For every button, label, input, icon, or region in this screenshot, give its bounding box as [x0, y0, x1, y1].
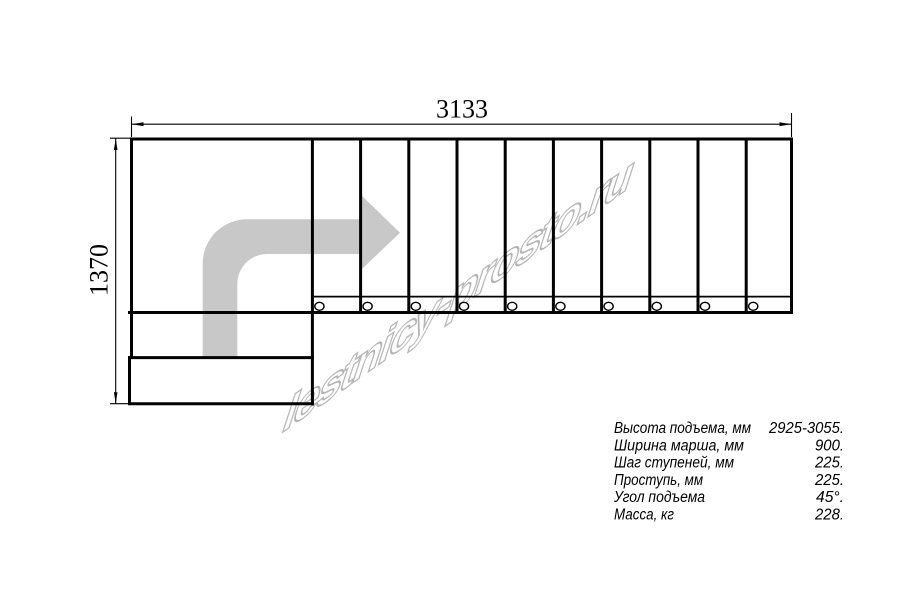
svg-text:900.: 900. [815, 438, 844, 455]
svg-text:3133: 3133 [436, 95, 488, 124]
svg-text:Высота подъема, мм: Высота подъема, мм [614, 420, 751, 437]
svg-text:228.: 228. [814, 507, 844, 524]
svg-text:1370: 1370 [85, 244, 114, 296]
svg-text:Проступь, мм: Проступь, мм [614, 472, 703, 489]
svg-text:Шаг ступеней, мм: Шаг ступеней, мм [614, 455, 734, 472]
svg-text:45°.: 45°. [816, 489, 844, 506]
svg-text:Угол подъема: Угол подъема [613, 489, 705, 506]
svg-text:2925-3055.: 2925-3055. [768, 420, 844, 437]
svg-text:Ширина марша, мм: Ширина марша, мм [614, 438, 744, 455]
svg-text:Масса, кг: Масса, кг [614, 507, 674, 524]
svg-text:225.: 225. [814, 472, 844, 489]
svg-text:225.: 225. [814, 455, 844, 472]
